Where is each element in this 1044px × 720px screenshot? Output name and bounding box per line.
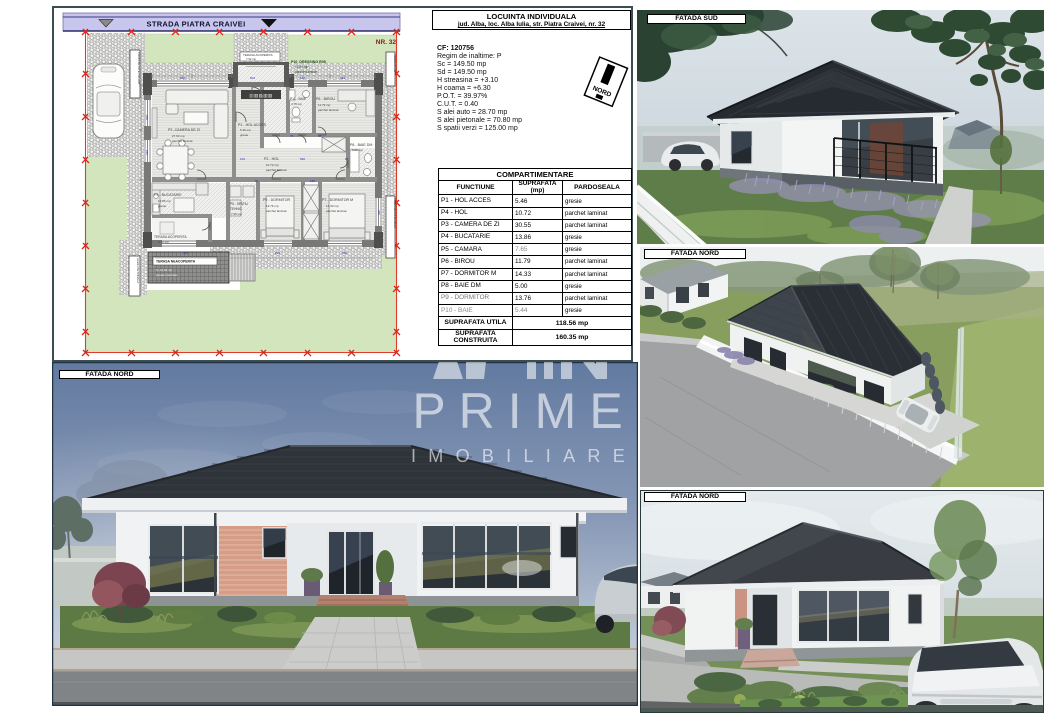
svg-text:P5 - SPATIU: P5 - SPATIU (230, 202, 248, 206)
svg-text:7.52 mp: 7.52 mp (246, 57, 257, 61)
svg-text:102: 102 (240, 157, 245, 161)
svg-text:P11 - BAIE: P11 - BAIE (290, 97, 307, 101)
svg-text:P2 - HOL: P2 - HOL (264, 157, 279, 161)
svg-text:12.04 mp: 12.04 mp (295, 65, 309, 69)
svg-text:TERASA ACOPERITA: TERASA ACOPERITA (154, 235, 187, 239)
svg-text:P10_DRESSING R05: P10_DRESSING R05 (291, 60, 326, 64)
svg-text:P4 - BUCATARIE: P4 - BUCATARIE (154, 193, 182, 197)
svg-text:160: 160 (300, 76, 305, 80)
svg-text:350: 350 (342, 251, 347, 255)
svg-text:290: 290 (275, 251, 280, 255)
svg-text:P9 - DORMITOR: P9 - DORMITOR (263, 198, 290, 202)
svg-text:180: 180 (310, 179, 315, 183)
svg-text:88: 88 (318, 134, 322, 138)
svg-text:ALEE PIETONALA: ALEE PIETONALA (136, 258, 140, 283)
svg-text:P3 -CAMERA DE ZI: P3 -CAMERA DE ZI (168, 128, 200, 132)
svg-text:gresie: gresie (158, 204, 167, 208)
svg-text:PROPRIETATE NR.32B: PROPRIETATE NR.32B (137, 52, 141, 84)
svg-text:pavele inierbate: pavele inierbate (156, 273, 178, 277)
svg-text:VECINATATE: VECINATATE (393, 54, 397, 72)
svg-text:4.75 mp: 4.75 mp (291, 102, 302, 106)
svg-text:TERASA NEACOPERITA: TERASA NEACOPERITA (156, 260, 196, 264)
svg-text:parchet laminat: parchet laminat (295, 70, 317, 74)
svg-text:parchet laminat: parchet laminat (318, 108, 339, 112)
svg-text:7.65 mp: 7.65 mp (231, 212, 242, 216)
svg-text:13.76 mp: 13.76 mp (266, 204, 279, 208)
svg-text:5.46 mp: 5.46 mp (240, 128, 251, 132)
svg-text:S: 23.00 mp: S: 23.00 mp (156, 268, 173, 272)
svg-text:5.00 mp: 5.00 mp (352, 148, 363, 152)
svg-text:10.72 mp: 10.72 mp (266, 163, 279, 167)
svg-text:P6 - BIROU: P6 - BIROU (316, 97, 335, 101)
svg-text:11.79 mp: 11.79 mp (318, 103, 331, 107)
svg-text:345: 345 (340, 76, 345, 80)
svg-text:P7 - DORMITOR M: P7 - DORMITOR M (322, 198, 353, 202)
svg-text:88: 88 (345, 157, 349, 161)
svg-text:590: 590 (300, 157, 305, 161)
svg-text:P8 - BAIE DM: P8 - BAIE DM (350, 143, 372, 147)
svg-text:parchet laminat: parchet laminat (326, 209, 347, 213)
svg-text:88: 88 (255, 179, 259, 183)
svg-text:TEHNIC: TEHNIC (230, 207, 243, 211)
svg-text:365: 365 (183, 251, 188, 255)
svg-text:280: 280 (377, 210, 381, 215)
svg-text:▥▥▥▥▥: ▥▥▥▥▥ (249, 93, 273, 98)
svg-text:3.72 mp: 3.72 mp (158, 240, 169, 244)
svg-text:STRADA PIATRA CRAIVEI: STRADA PIATRA CRAIVEI (147, 20, 246, 29)
svg-text:503: 503 (250, 76, 255, 80)
svg-text:parchet laminat: parchet laminat (172, 139, 193, 143)
svg-text:P1 - HOL ACCES: P1 - HOL ACCES (238, 123, 267, 127)
svg-text:14.33 mp: 14.33 mp (326, 204, 339, 208)
svg-text:13.86 mp: 13.86 mp (158, 199, 171, 203)
svg-text:PROPRIETATE NR.34: PROPRIETATE NR.34 (393, 198, 397, 228)
svg-text:350: 350 (180, 76, 185, 80)
svg-text:260: 260 (145, 115, 149, 120)
svg-text:75: 75 (290, 134, 294, 138)
svg-text:parchet laminat: parchet laminat (266, 209, 287, 213)
svg-text:225: 225 (145, 150, 149, 155)
svg-text:parchet laminat: parchet laminat (266, 168, 287, 172)
svg-text:gresie: gresie (240, 133, 249, 137)
svg-text:NR. 32: NR. 32 (376, 39, 397, 46)
svg-text:27.93 mp: 27.93 mp (172, 134, 185, 138)
